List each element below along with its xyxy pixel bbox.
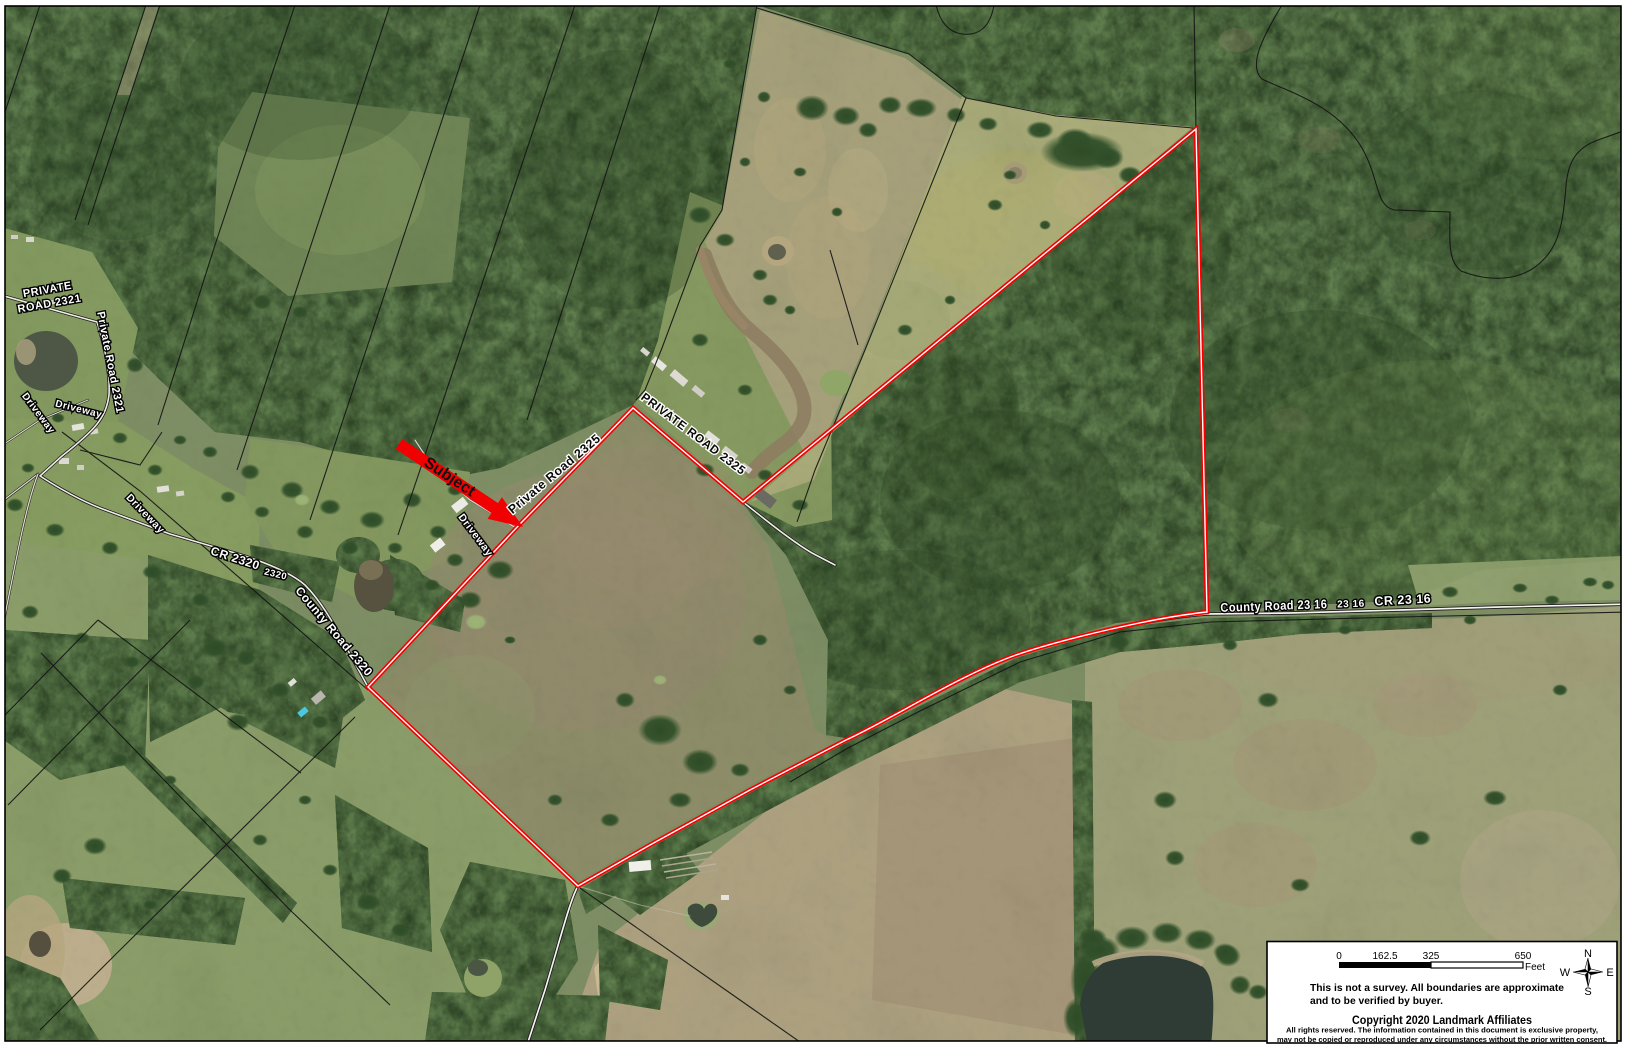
svg-text:W: W [1560, 967, 1571, 979]
svg-text:162.5: 162.5 [1372, 951, 1397, 962]
svg-text:and to be verified by buyer.: and to be verified by buyer. [1310, 995, 1443, 1007]
svg-text:E: E [1606, 967, 1613, 979]
svg-text:0: 0 [1336, 951, 1342, 962]
svg-text:S: S [1584, 986, 1591, 998]
svg-text:650: 650 [1515, 951, 1532, 962]
svg-text:325: 325 [1423, 951, 1440, 962]
svg-text:23 16: 23 16 [1337, 599, 1365, 611]
svg-text:may not be copied or reproduce: may not be copied or reproduced under an… [1277, 1035, 1607, 1044]
svg-text:This is not a survey. All bou: This is not a survey. All boundaries are… [1310, 982, 1564, 994]
svg-text:All rights reserved. The infor: All rights reserved. The information con… [1286, 1026, 1598, 1035]
svg-text:CR 23 16: CR 23 16 [1374, 592, 1431, 609]
svg-text:Feet: Feet [1525, 962, 1545, 973]
